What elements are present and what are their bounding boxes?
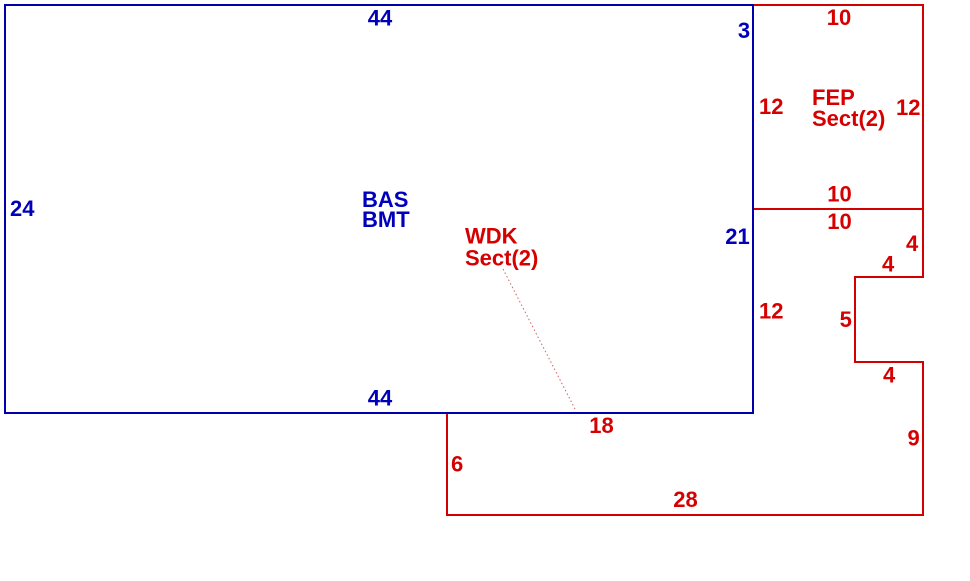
svg-text:10: 10 [827, 5, 851, 30]
svg-text:4: 4 [883, 363, 896, 388]
svg-text:9: 9 [908, 426, 920, 451]
svg-text:6: 6 [451, 452, 463, 477]
svg-text:24: 24 [10, 196, 35, 221]
svg-text:3: 3 [738, 18, 750, 43]
svg-text:Sect(2): Sect(2) [465, 246, 538, 271]
svg-text:10: 10 [827, 181, 851, 206]
svg-text:12: 12 [759, 94, 783, 119]
svg-text:10: 10 [827, 209, 851, 234]
svg-text:28: 28 [673, 487, 697, 512]
svg-text:18: 18 [589, 413, 613, 438]
svg-text:Sect(2): Sect(2) [812, 106, 885, 131]
svg-text:5: 5 [840, 307, 852, 332]
svg-text:12: 12 [759, 299, 783, 324]
svg-text:BMT: BMT [362, 207, 410, 232]
svg-text:12: 12 [896, 95, 920, 120]
svg-text:44: 44 [368, 386, 393, 411]
svg-text:4: 4 [906, 231, 919, 256]
svg-text:44: 44 [368, 5, 393, 30]
svg-text:4: 4 [882, 252, 895, 277]
svg-text:21: 21 [725, 224, 749, 249]
